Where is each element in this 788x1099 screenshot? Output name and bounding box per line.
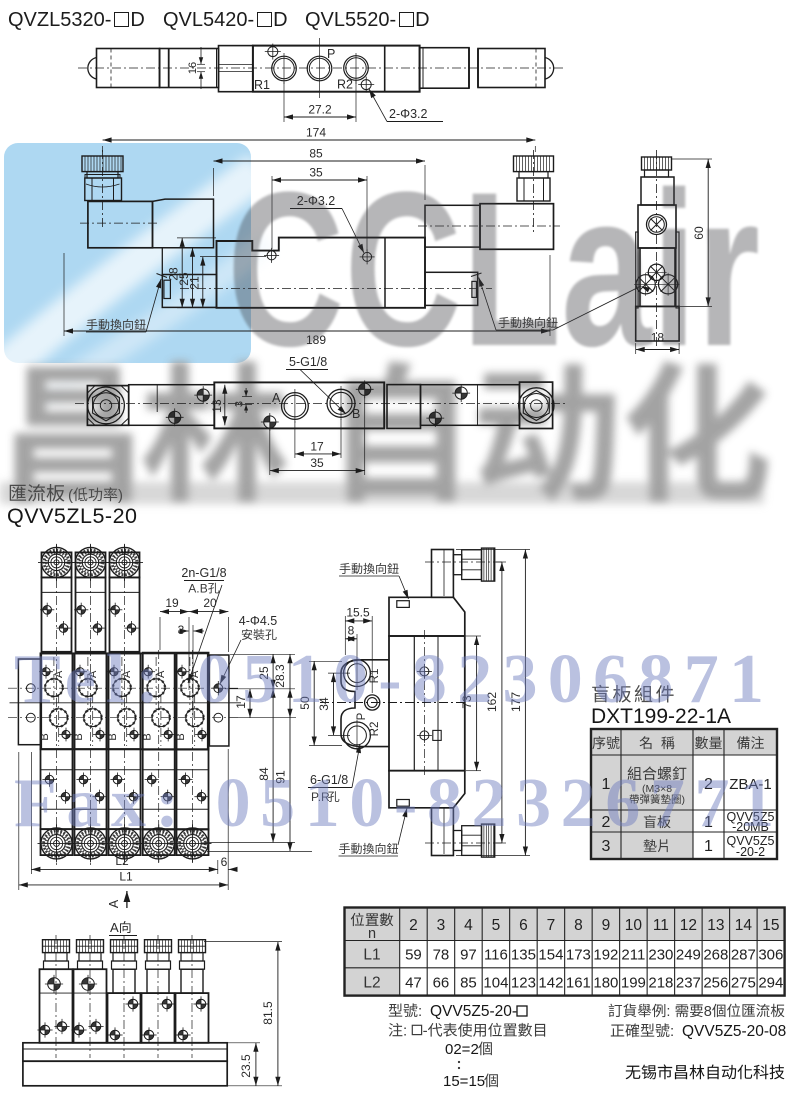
- svg-text:Fax: 0510-82326771: Fax: 0510-82326771: [14, 765, 784, 842]
- svg-text:Tel: 0510-82306871: Tel: 0510-82306871: [14, 641, 774, 718]
